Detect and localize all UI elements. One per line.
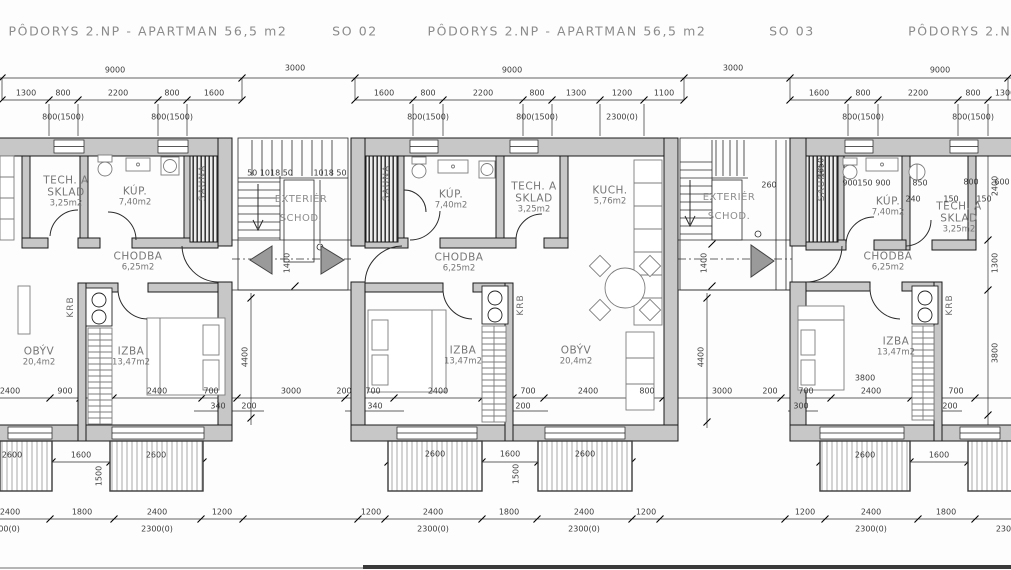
dimension-label: 1400 [283, 253, 292, 273]
dimension-label: 800 [164, 89, 179, 98]
dimension-label: 4400 [241, 347, 250, 367]
stove-icon [912, 286, 938, 324]
dimension-label: 2300(0) [417, 525, 449, 534]
sauna-label: SAUNA [198, 165, 208, 202]
dimension-label: 300 [793, 402, 808, 411]
dimension-label: 1200 [212, 508, 232, 517]
sheet-edge-line2 [0, 567, 363, 569]
toilet-icon [843, 158, 857, 179]
room-label: IZBA13,47m2 [112, 346, 150, 367]
sink-icon [866, 158, 898, 171]
dimension-label: 2400 [428, 387, 448, 396]
dimension-label: 1200 [361, 508, 381, 517]
dimension-label: 2400 [578, 387, 598, 396]
dimension-label: 2600 [2, 451, 22, 460]
dimension-label: 3000 [285, 64, 305, 73]
dimension-label: 1500 [95, 466, 104, 486]
dimension-label: 2300(0) [568, 525, 600, 534]
stair-label: EXTERIÉRSCHOD. [703, 188, 756, 226]
dimension-label: 1800 [499, 508, 519, 517]
dimension-label: 800(1500) [407, 113, 449, 122]
dimension-label: 1200 [612, 89, 632, 98]
dimension-label: 800 [965, 89, 980, 98]
dimension-label: 50 1018 50 [247, 169, 293, 178]
dimension-label: 2400 [0, 387, 20, 396]
dimension-label: 9000 [105, 66, 125, 75]
dimension-label: 1600 [500, 450, 520, 459]
washer-icon [161, 157, 179, 175]
dimension-label: 1800 [936, 508, 956, 517]
dimension-label: 200 [515, 402, 530, 411]
dimension-label: 1500 [512, 464, 521, 484]
dimension-label: 700 [365, 387, 380, 396]
dimension-label: 1018 50 [313, 169, 346, 178]
floor-plan-sheet: PÔDORYS 2.NP - APARTMAN 56,5 m2SO 02PÔDO… [0, 0, 1011, 570]
drawing-title: SO 02 [332, 24, 378, 39]
krb-label: KRB [516, 294, 526, 315]
dimension-label: 3000 [723, 64, 743, 73]
room-label: OBÝV20,4m2 [560, 345, 593, 366]
dimension-label: 800 [420, 89, 435, 98]
dimension-label: 2300(0) [606, 113, 638, 122]
dimension-label: 1600 [929, 451, 949, 460]
dimension-label: 1600 [374, 89, 394, 98]
dimension-label: 2400 [861, 387, 881, 396]
dimension-label: 2600 [425, 450, 445, 459]
drawing-title: PÔDORYS 2.NP - APARTMAN 56,5 m2 [428, 24, 707, 39]
dimension-label: 2400 [147, 387, 167, 396]
unit2-balconies [388, 441, 632, 491]
krb-label: KRB [66, 296, 76, 317]
room-label: OBÝV20,4m2 [23, 346, 56, 367]
dimension-label: 150 [857, 179, 872, 188]
room-label: CHODBA6,25m2 [864, 251, 913, 272]
dimension-label: 2400 [574, 508, 594, 517]
dimension-label: 800 [963, 178, 978, 187]
bed-icon [147, 318, 225, 395]
dimension-label: 2200 [908, 89, 928, 98]
kitchen-counter [0, 156, 14, 240]
dimension-label: 800 [55, 89, 70, 98]
dimension-label: 2300(0) [141, 525, 173, 534]
dimension-label: 800(1500) [952, 113, 994, 122]
dimension-label: 9000 [930, 66, 950, 75]
direction-arrows [250, 245, 774, 277]
dimension-label: 900 [842, 179, 857, 188]
dimension-label: 3000 [712, 387, 732, 396]
dimension-label: 2300(0) [0, 525, 20, 534]
dimension-label: 2400 [423, 508, 443, 517]
dimension-label: 2400 [861, 508, 881, 517]
room-label: TECH. ASKLAD3,25m2 [511, 181, 556, 214]
sheet-edge-line [363, 565, 1011, 569]
sofa-icon [626, 332, 654, 410]
sauna-label: SAUNA [382, 165, 392, 202]
dimension-label: 800 [639, 387, 654, 396]
dimension-label: 2600 [146, 451, 166, 460]
drawing-title: PÔDORYS 2.NP - APARTMAN 56,5 m2 [9, 24, 288, 39]
dimension-label: 2200 [108, 89, 128, 98]
direction-arrow-right2-icon [751, 245, 774, 277]
dimension-label: 3800 [991, 343, 1000, 363]
toilet-icon [98, 155, 112, 176]
dimension-label: 700 [203, 387, 218, 396]
room-label: KÚP.7,40m2 [435, 189, 468, 210]
dimension-label: 2300 [996, 525, 1011, 534]
dimension-label: 260 [761, 181, 776, 190]
dimension-label: 340 [210, 402, 225, 411]
dimension-label: 1200 [636, 508, 656, 517]
dimension-label: 1600 [204, 89, 224, 98]
dimension-label: 9000 [502, 66, 522, 75]
dimension-label: 2400 [0, 508, 20, 517]
dimension-label: 800(1500) [42, 113, 84, 122]
dimension-label: 1400 [700, 253, 709, 273]
bed-icon [798, 306, 844, 390]
dimension-label: 900 [875, 179, 890, 188]
dimension-label: 200 [336, 387, 351, 396]
dimension-label: 800(1500) [151, 113, 193, 122]
unit3-balconies [820, 441, 1011, 491]
dimension-label: 4400 [697, 347, 706, 367]
dimension-label: 2300(0) [855, 525, 887, 534]
room-label: TECH. ASKLAD3,25m2 [43, 175, 88, 208]
sink-icon [126, 158, 150, 171]
direction-arrow-left-icon [250, 246, 272, 274]
dimension-label: 2400 [991, 176, 1000, 196]
washer-icon [479, 161, 495, 178]
dimension-label: 1200 [795, 508, 815, 517]
dimension-label: 1300 [991, 253, 1000, 273]
dimension-label: 700 [798, 387, 813, 396]
sauna-label: SAUNA [817, 165, 827, 202]
bed-icon [368, 310, 446, 392]
toilet-icon [412, 157, 426, 178]
room-label: IZBA13,47m2 [444, 345, 482, 366]
dimension-label: 700 [520, 387, 535, 396]
dimension-label: 1600 [71, 451, 91, 460]
dimension-label: 800 [529, 89, 544, 98]
dimension-label: 1300 [566, 89, 586, 98]
dimension-label: 800 [855, 89, 870, 98]
room-label: KÚP.7,40m2 [872, 196, 905, 217]
room-label: IZBA13,47m2 [877, 336, 915, 357]
ladder-icon [912, 326, 934, 420]
dimension-label: 1300 [16, 89, 36, 98]
floor-plan-svg [0, 0, 1011, 570]
shelf-icon [18, 286, 30, 334]
dimension-label: 700 [948, 387, 963, 396]
dimension-label: 800(1500) [842, 113, 884, 122]
room-label: KUCH.5,76m2 [592, 185, 627, 206]
dimension-label: 1600 [809, 89, 829, 98]
dimension-label: 200 [762, 387, 777, 396]
room-label: KÚP.7,40m2 [119, 186, 152, 207]
stair-label: EXTERIÉRSCHOD. [275, 190, 328, 228]
dimension-label: 2200 [473, 89, 493, 98]
room-label: CHODBA6,25m2 [435, 252, 484, 273]
dimension-label: 1300 [995, 89, 1011, 98]
stove-icon [86, 288, 112, 326]
dimension-label: 3800 [855, 374, 875, 383]
ladder-icon [482, 326, 506, 422]
dimension-label: 1800 [72, 508, 92, 517]
dimension-label: 340 [367, 402, 382, 411]
dimension-label: 200 [942, 402, 957, 411]
dimension-label: 800(1500) [516, 113, 558, 122]
dimension-label: 2600 [575, 450, 595, 459]
stove-icon [482, 286, 508, 324]
room-label: TECH. ASKLAD3,25m2 [936, 201, 981, 234]
dimension-label: 240 [905, 195, 920, 204]
dimension-label: 1100 [654, 89, 674, 98]
dimension-label: 200 [241, 402, 256, 411]
dimension-label: 2400 [147, 508, 167, 517]
dimension-label: 3000 [281, 387, 301, 396]
dimension-label: 2600 [855, 451, 875, 460]
ladder-icon [88, 328, 112, 424]
drawing-title: SO 03 [769, 24, 815, 39]
krb-label: KRB [945, 294, 955, 315]
sink-icon [438, 160, 468, 173]
direction-arrow-right-icon [321, 246, 344, 274]
dimension-label: 900 [57, 387, 72, 396]
room-label: CHODBA6,25m2 [114, 251, 163, 272]
drawing-title: PÔDORYS 2.NP - A [908, 24, 1011, 39]
dimension-label: 850 [912, 179, 927, 188]
